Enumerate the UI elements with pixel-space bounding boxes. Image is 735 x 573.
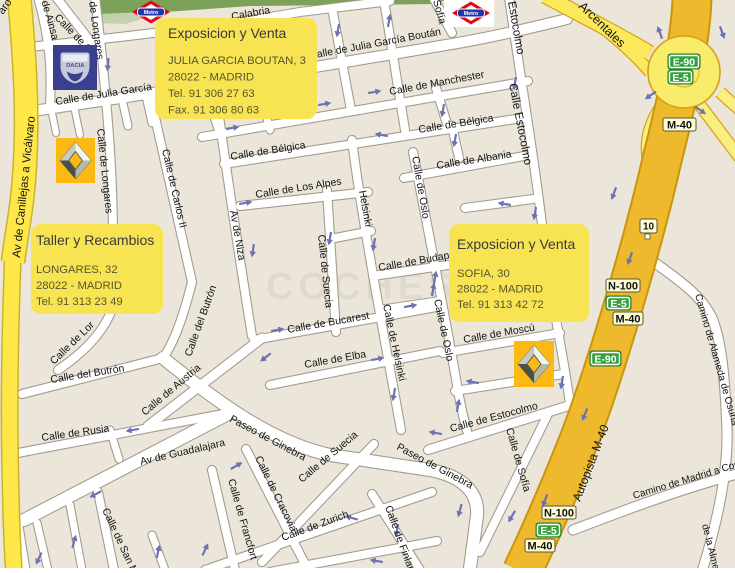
svg-text:Exposicion y Venta: Exposicion y Venta <box>168 25 287 41</box>
svg-text:M-40: M-40 <box>615 313 640 325</box>
svg-text:Tel. 91 313 42 72: Tel. 91 313 42 72 <box>457 299 544 311</box>
svg-text:DACIA: DACIA <box>66 63 85 69</box>
svg-text:E-5: E-5 <box>610 298 627 310</box>
svg-text:10: 10 <box>643 222 655 233</box>
svg-text:28022 - MADRID: 28022 - MADRID <box>36 280 122 292</box>
svg-text:28022 - MADRID: 28022 - MADRID <box>168 72 254 84</box>
svg-text:28022 - MADRID: 28022 - MADRID <box>457 284 543 296</box>
svg-text:Tel. 91 313 23 49: Tel. 91 313 23 49 <box>36 296 123 308</box>
svg-text:M-40: M-40 <box>667 119 692 131</box>
svg-text:SOFIA, 30: SOFIA, 30 <box>457 268 510 280</box>
svg-text:Metro: Metro <box>144 10 159 16</box>
svg-text:N-100: N-100 <box>544 507 574 519</box>
svg-text:M-40: M-40 <box>527 540 552 552</box>
svg-text:Fax. 91 306 80 63: Fax. 91 306 80 63 <box>168 105 259 117</box>
svg-text:Metro: Metro <box>464 11 479 17</box>
svg-text:E-90: E-90 <box>594 353 616 365</box>
svg-text:Exposicion y Venta: Exposicion y Venta <box>457 236 576 252</box>
svg-text:E-5: E-5 <box>540 525 557 537</box>
svg-text:E-90: E-90 <box>673 56 695 68</box>
svg-text:JULIA GARCIA BOUTAN, 3: JULIA GARCIA BOUTAN, 3 <box>168 55 306 67</box>
svg-text:Tel. 91 306 27 63: Tel. 91 306 27 63 <box>168 88 255 100</box>
svg-text:Taller y Recambios: Taller y Recambios <box>36 232 154 248</box>
svg-text:E-5: E-5 <box>672 72 689 84</box>
svg-text:LONGARES, 32: LONGARES, 32 <box>36 264 118 276</box>
svg-text:N-100: N-100 <box>608 280 638 292</box>
